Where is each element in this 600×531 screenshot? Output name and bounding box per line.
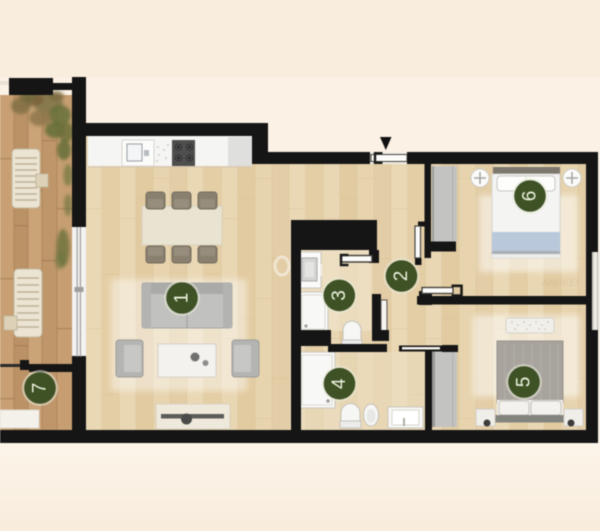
svg-text:2: 2 <box>391 271 412 282</box>
svg-text:6: 6 <box>520 191 541 202</box>
svg-text:3: 3 <box>329 290 350 301</box>
svg-text:ΑΝΗΚΕΙ: ΑΝΗΚΕΙ <box>541 278 578 289</box>
svg-text:7: 7 <box>30 383 51 394</box>
svg-text:4: 4 <box>329 378 350 389</box>
svg-text:5: 5 <box>514 377 535 388</box>
svg-text:1: 1 <box>172 293 193 304</box>
